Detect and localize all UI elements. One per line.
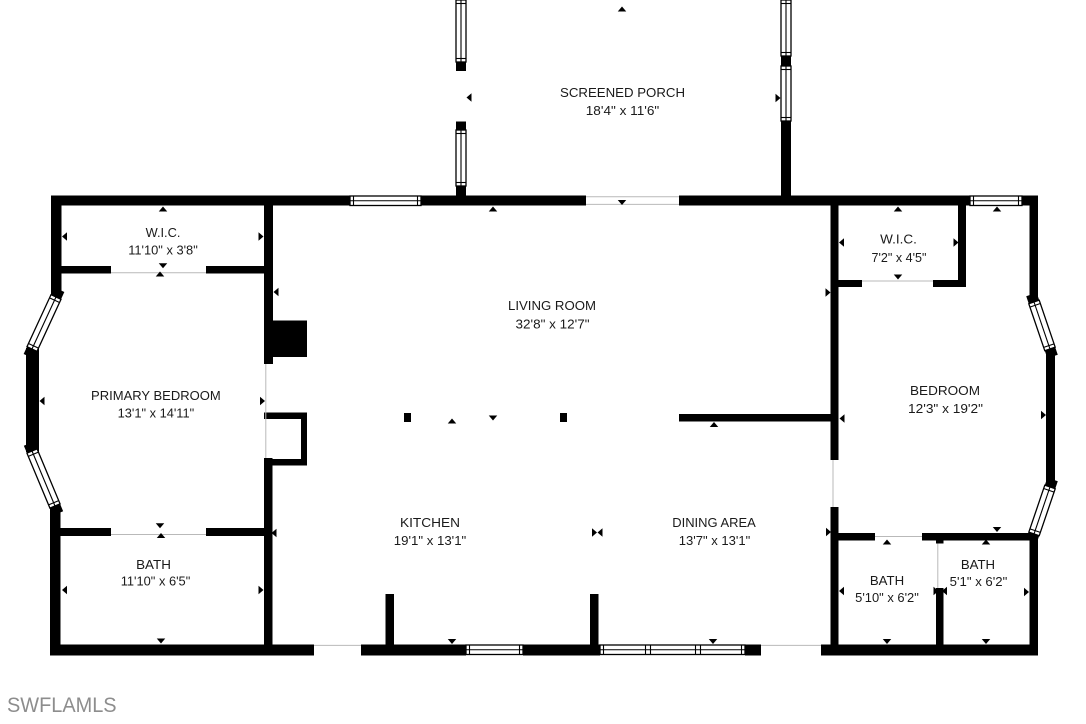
svg-text:W.I.C.: W.I.C. [880,232,917,247]
svg-text:W.I.C.: W.I.C. [146,225,181,240]
svg-text:5'1" x 6'2": 5'1" x 6'2" [950,574,1008,589]
svg-text:13'1" x 14'11": 13'1" x 14'11" [118,406,195,421]
svg-text:BEDROOM: BEDROOM [910,383,980,398]
svg-text:SWFLAMLS: SWFLAMLS [7,694,117,717]
svg-text:5'10" x 6'2": 5'10" x 6'2" [855,590,919,605]
svg-text:18'4" x 11'6": 18'4" x 11'6" [586,103,660,118]
svg-text:BATH: BATH [136,557,171,572]
svg-text:32'8" x 12'7": 32'8" x 12'7" [516,317,590,332]
svg-text:LIVING ROOM: LIVING ROOM [508,298,596,313]
svg-text:11'10" x 3'8": 11'10" x 3'8" [128,243,198,258]
svg-text:12'3" x 19'2": 12'3" x 19'2" [908,401,983,416]
svg-text:13'7" x 13'1": 13'7" x 13'1" [679,533,751,548]
svg-text:PRIMARY BEDROOM: PRIMARY BEDROOM [91,388,221,403]
svg-text:BATH: BATH [870,573,904,588]
svg-text:KITCHEN: KITCHEN [400,515,460,530]
svg-text:19'1" x 13'1": 19'1" x 13'1" [394,533,467,548]
svg-text:BATH: BATH [961,557,995,572]
svg-text:SCREENED PORCH: SCREENED PORCH [560,85,685,100]
svg-text:7'2" x 4'5": 7'2" x 4'5" [872,250,927,265]
svg-text:11'10" x 6'5": 11'10" x 6'5" [121,574,191,589]
svg-text:DINING AREA: DINING AREA [672,515,756,530]
